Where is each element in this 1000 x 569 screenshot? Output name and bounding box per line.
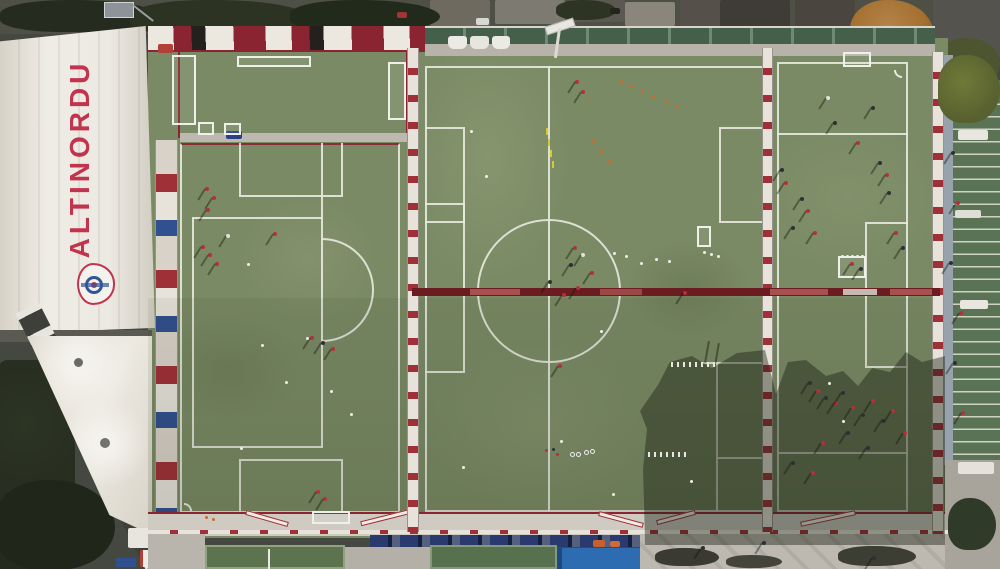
pavement-gap [345, 547, 430, 569]
training-stick [550, 150, 552, 157]
barrier-ad-board [890, 289, 932, 295]
tree [556, 0, 616, 20]
player-marker [859, 267, 863, 271]
apron-walkway [180, 133, 408, 142]
goal-frame [198, 122, 214, 135]
training-ring [584, 450, 589, 455]
barrier-ad-board [600, 289, 642, 295]
player-marker [784, 181, 788, 185]
mini-hurdle [648, 452, 650, 457]
ball-marker [462, 466, 465, 469]
player-marker [791, 226, 795, 230]
ball-marker [846, 255, 849, 258]
car-red [397, 12, 407, 18]
goal-frame [224, 123, 241, 135]
mini-hurdle [707, 362, 709, 367]
player-marker [956, 201, 960, 205]
cone-marker [652, 95, 655, 98]
ball-marker [710, 253, 713, 256]
goal-frame [843, 52, 871, 67]
player-marker [701, 546, 705, 550]
mini-hurdle [695, 362, 697, 367]
mini-hurdle [689, 362, 691, 367]
ball-marker [640, 262, 643, 265]
canopy-vent [74, 358, 83, 367]
cone-marker [587, 97, 590, 100]
trees-southwest [0, 480, 115, 569]
player-marker [851, 406, 855, 410]
player-marker [791, 461, 795, 465]
player-marker [878, 161, 882, 165]
player-marker [833, 121, 837, 125]
mini-hurdle [713, 362, 715, 367]
player-marker [813, 231, 817, 235]
goal-frame [237, 56, 311, 67]
player-marker [212, 196, 216, 200]
center-pitch-east-goal-box [719, 127, 765, 223]
player-marker [861, 413, 865, 417]
player-marker [846, 431, 850, 435]
aerial-photo-scene: ALTINORDU [0, 0, 1000, 569]
ball-marker [851, 255, 854, 258]
building [680, 0, 725, 26]
player-marker [951, 151, 955, 155]
building [625, 2, 675, 26]
ball-marker [613, 252, 616, 255]
goal-frame [172, 55, 196, 125]
mini-hurdle [672, 452, 674, 457]
cone-marker [545, 449, 548, 452]
player-marker [558, 364, 562, 368]
ball-marker [240, 447, 243, 450]
player-marker [201, 245, 205, 249]
player-marker [841, 391, 845, 395]
player-marker [208, 253, 212, 257]
ball-marker [612, 493, 615, 496]
bush [948, 498, 996, 550]
cone-marker [608, 160, 611, 163]
crest-bar [81, 283, 109, 287]
player-marker [872, 556, 876, 560]
right-pitch-line [777, 133, 908, 135]
player-marker [316, 490, 320, 494]
ball-marker [841, 255, 844, 258]
tree-overhang [938, 55, 1000, 123]
ball-marker [861, 255, 864, 258]
player-marker [824, 396, 828, 400]
ball-marker [247, 263, 250, 266]
ball-marker [560, 440, 563, 443]
cone-marker [205, 516, 208, 519]
player-marker [590, 271, 594, 275]
building-shadow [640, 345, 945, 545]
player-marker [856, 141, 860, 145]
player-marker [562, 293, 566, 297]
mini-pitch-west-line [268, 549, 270, 569]
dugout-canopy [448, 36, 467, 49]
player-marker [205, 187, 209, 191]
ball-marker [306, 337, 309, 340]
orange-structure [593, 540, 605, 547]
training-ring [590, 449, 595, 454]
ball-marker [285, 381, 288, 384]
player-marker [800, 197, 804, 201]
mini-hurdle [660, 452, 662, 457]
player-marker [569, 263, 573, 267]
equipment-red [158, 44, 173, 53]
mini-pitch-west [205, 545, 345, 569]
cone-marker [592, 140, 595, 143]
player-marker [683, 291, 687, 295]
player-marker [866, 446, 870, 450]
player-marker [959, 311, 963, 315]
player-marker [548, 280, 552, 284]
player-marker [894, 231, 898, 235]
cone-marker [630, 85, 633, 88]
roof-brand-text: ALTINORDU [63, 34, 97, 284]
left-pitch-line [192, 217, 322, 219]
club-crest [75, 259, 119, 309]
floodlight-tower [104, 2, 134, 18]
player-marker [581, 253, 585, 257]
tribune-board [960, 300, 988, 309]
player-marker [850, 262, 854, 266]
orange-structure [610, 541, 620, 547]
mini-hurdle [677, 362, 679, 367]
player-marker [206, 208, 210, 212]
ball-marker [655, 258, 658, 261]
ball-marker [330, 390, 333, 393]
player-marker [576, 286, 580, 290]
cone-marker [641, 90, 644, 93]
training-stick [548, 139, 550, 146]
training-ring [570, 452, 575, 457]
player-marker [762, 541, 766, 545]
player-marker [949, 261, 953, 265]
tribune-board [955, 210, 981, 218]
player-marker [780, 168, 784, 172]
ball-marker [717, 255, 720, 258]
barrier-ad-board [843, 289, 877, 295]
barrier-ad-board [470, 289, 520, 295]
mini-hurdle [654, 452, 656, 457]
player-marker [806, 209, 810, 213]
player-marker [961, 411, 965, 415]
cone-marker [552, 448, 555, 451]
player-marker [826, 96, 830, 100]
mini-hurdle [684, 452, 686, 457]
cone-marker [600, 150, 603, 153]
mini-pitch-mid [430, 545, 557, 569]
player-marker [215, 262, 219, 266]
training-ring [576, 452, 581, 457]
dugout-canopy [470, 36, 489, 49]
player-marker [808, 381, 812, 385]
ball-marker [600, 330, 603, 333]
player-marker [321, 341, 325, 345]
tribune-board [958, 130, 988, 140]
player-marker [575, 80, 579, 84]
player-marker [811, 471, 815, 475]
goal-frame [697, 226, 711, 247]
cone-marker [556, 453, 559, 456]
mini-hurdle [701, 362, 703, 367]
west-pavement [148, 534, 205, 569]
ball-marker [625, 255, 628, 258]
mini-hurdle [683, 362, 685, 367]
left-pitch-top-penalty-box [239, 143, 343, 197]
player-marker [871, 106, 875, 110]
training-stick [546, 128, 548, 135]
ball-marker [828, 382, 831, 385]
roof-text: ALTINORDU [64, 60, 96, 259]
player-marker [273, 232, 277, 236]
stand-roof-striped [148, 26, 426, 52]
player-marker [953, 361, 957, 365]
player-marker [323, 497, 327, 501]
barrier-ad-board [770, 289, 828, 295]
canopy-vent [100, 438, 110, 448]
van-white [476, 18, 489, 25]
player-marker [816, 389, 820, 393]
player-marker [871, 399, 875, 403]
player-marker [331, 347, 335, 351]
player-marker [901, 246, 905, 250]
player-marker [821, 441, 825, 445]
blue-canopy [558, 548, 640, 569]
ball-marker [842, 420, 845, 423]
player-marker [226, 234, 230, 238]
cone-marker [676, 105, 679, 108]
player-marker [891, 409, 895, 413]
ball-marker [350, 413, 353, 416]
small-structure-blue [116, 558, 136, 567]
pavement-debris [726, 555, 782, 568]
cone-marker [212, 518, 215, 521]
goal-frame [388, 62, 406, 120]
building [495, 0, 565, 24]
ball-marker [690, 480, 693, 483]
pavement-debris [838, 546, 916, 566]
car-dark [610, 8, 620, 14]
training-stick [552, 161, 554, 168]
player-marker [581, 90, 585, 94]
player-marker [885, 173, 889, 177]
ball-marker [261, 344, 264, 347]
mini-hurdle [666, 452, 668, 457]
mini-hurdle [678, 452, 680, 457]
player-marker [573, 246, 577, 250]
pavement-debris [655, 548, 719, 566]
white-structure [958, 462, 994, 474]
ball-marker [703, 251, 706, 254]
cone-marker [665, 100, 668, 103]
goal-frame [312, 511, 350, 524]
player-marker [903, 431, 907, 435]
ball-marker [668, 260, 671, 263]
ball-marker [470, 130, 473, 133]
player-marker [310, 336, 314, 340]
ball-marker [856, 255, 859, 258]
ball-marker [485, 175, 488, 178]
cone-marker [620, 80, 623, 83]
player-marker [887, 191, 891, 195]
mini-hurdle [671, 362, 673, 367]
dugout-canopy [492, 36, 510, 49]
